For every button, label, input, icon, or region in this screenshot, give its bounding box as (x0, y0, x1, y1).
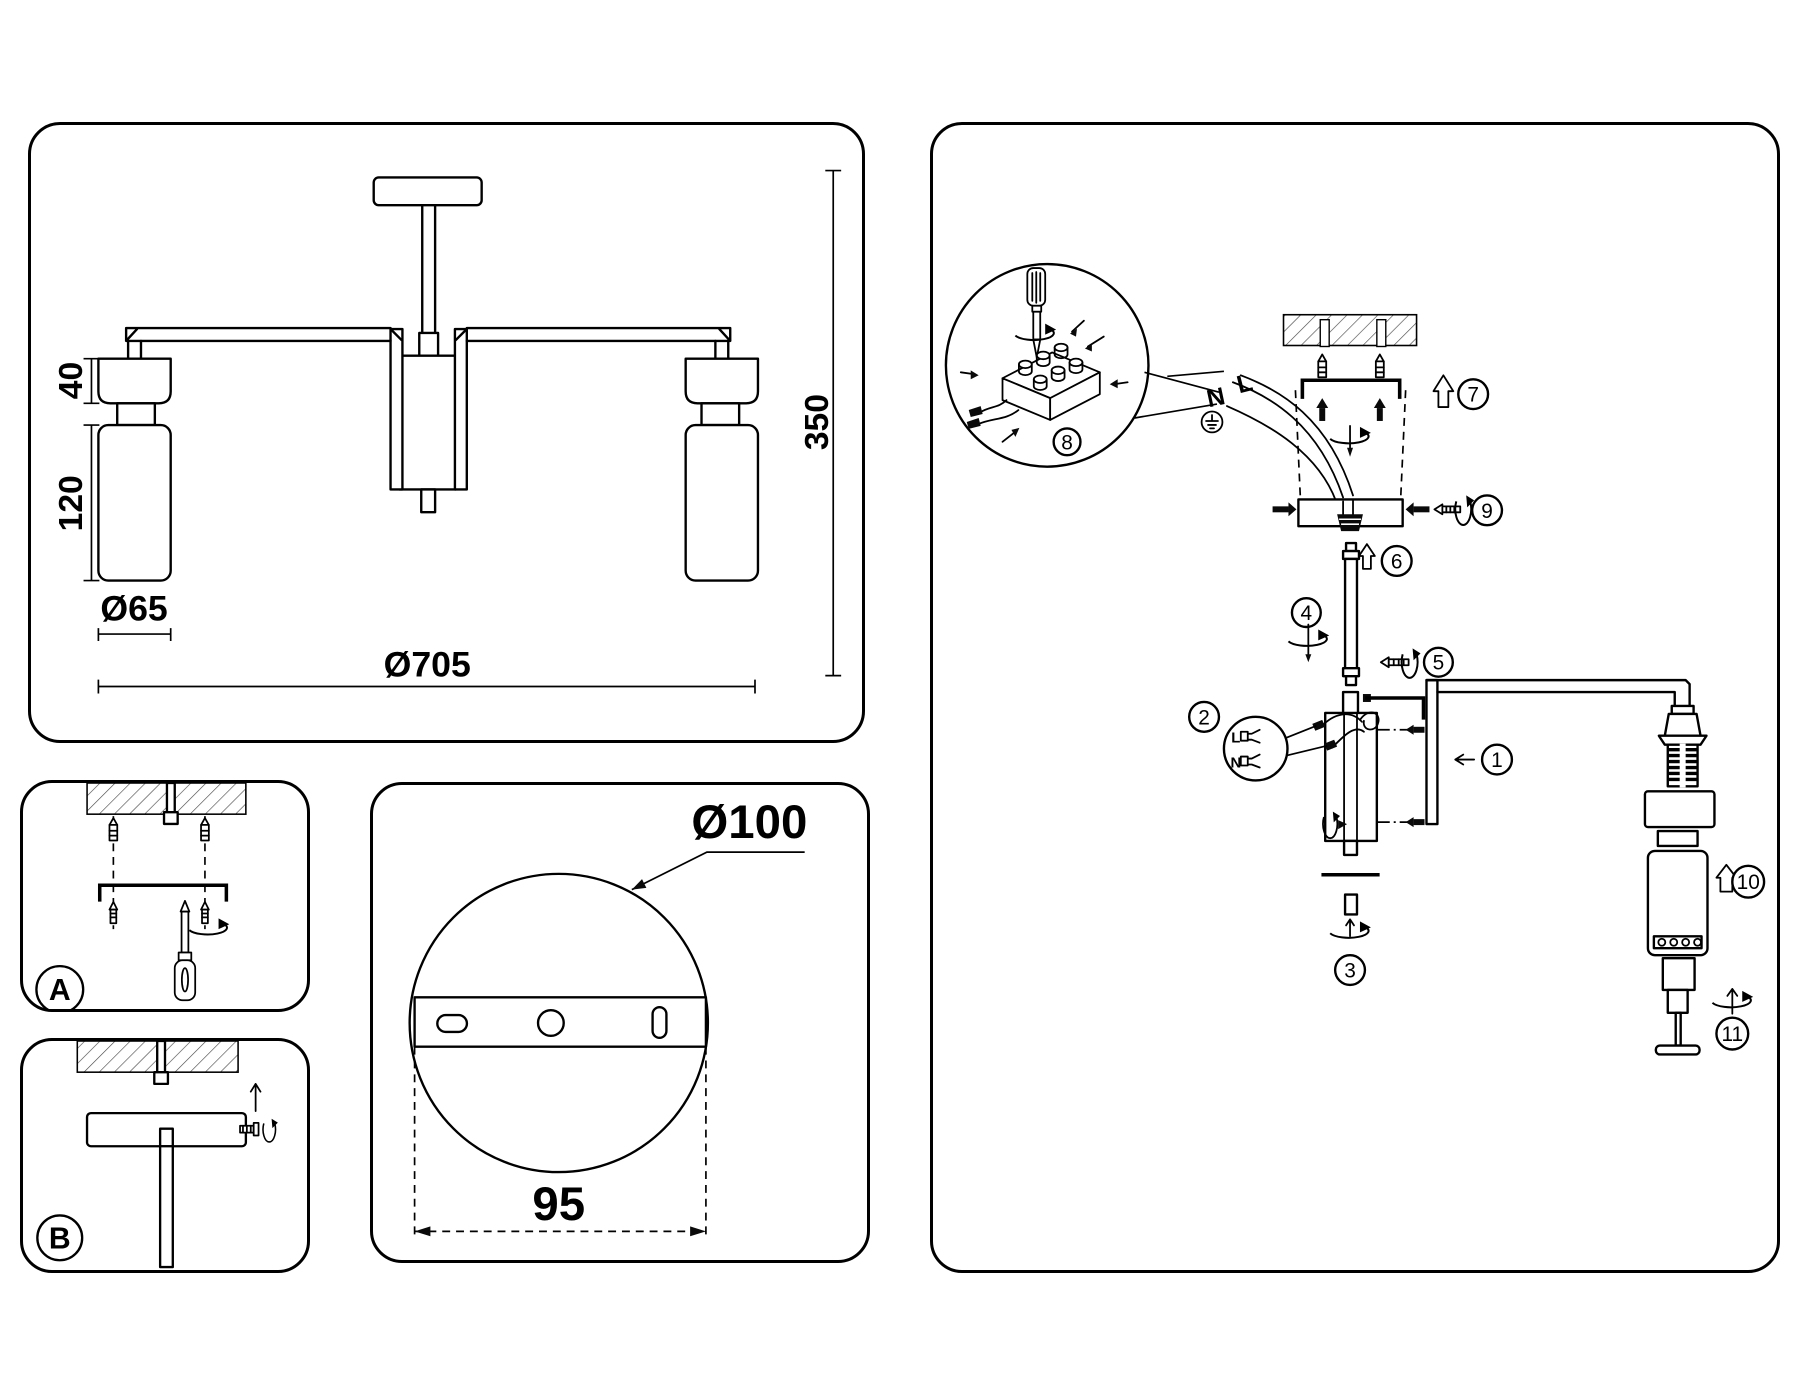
step-b-panel: B (20, 1038, 310, 1273)
left-arm-drop (391, 329, 403, 489)
ceiling-pin-collar (164, 812, 178, 824)
circled-step-6: 6 (1382, 546, 1412, 576)
dimension-panel: 40 120 Ø65 Ø705 350 (28, 122, 865, 743)
dim-label-hole-spacing: 95 (532, 1178, 585, 1231)
step-10-label: 10 (1737, 871, 1760, 894)
finial-part (1345, 895, 1357, 915)
screw-rotation-icon (1330, 426, 1371, 457)
screw-axis-lines (1377, 730, 1424, 822)
circled-step-8: 8 (1054, 428, 1081, 455)
left-arm (126, 328, 401, 341)
step-a-panel: A (20, 780, 310, 1012)
assembly-drawing: 8 L N (933, 125, 1777, 1270)
strain-relief-nut (1337, 514, 1363, 531)
fixture-front-view (98, 177, 758, 580)
right-lamp (686, 359, 758, 581)
dim-label-shade-diameter: Ø65 (100, 588, 167, 628)
step-1-label: 1 (1491, 749, 1503, 772)
slot-vertical (653, 1007, 667, 1038)
dim-label-shade-height: 120 (53, 475, 90, 531)
detail-wire-label-live: L (1231, 731, 1240, 747)
dim-label-head-height: 40 (53, 362, 90, 399)
dim-label-fixture-diameter: Ø705 (384, 645, 471, 685)
center-hole (538, 1010, 564, 1036)
arrow-up-icon (1359, 544, 1375, 569)
dim-label-canopy-diameter: Ø100 (691, 796, 807, 849)
step-badge-b-label: B (49, 1222, 71, 1255)
right-arm (456, 328, 730, 341)
lamp-head-block (1645, 791, 1715, 827)
led-bulb (1656, 958, 1700, 1054)
circled-step-2: 2 (1189, 702, 1219, 732)
canopy-dimension-panel: Ø100 95 (370, 782, 870, 1263)
lamp-socket (1659, 706, 1707, 787)
step-badge-a: A (36, 966, 83, 1009)
step-6-label: 6 (1391, 550, 1403, 573)
arm (1426, 680, 1689, 713)
wall-anchor-icons (109, 818, 208, 840)
rod-collar (419, 333, 438, 357)
down-rod (160, 1146, 173, 1267)
alignment-dashed-lines (113, 816, 205, 929)
step-4-label: 4 (1301, 602, 1313, 625)
down-rod (422, 205, 435, 334)
arrow-left-icon (1455, 755, 1474, 765)
arm-plate (1426, 680, 1437, 824)
step-b-drawing: B (23, 1041, 307, 1270)
ceiling-canopy (374, 177, 482, 205)
circled-step-5: 5 (1424, 648, 1453, 677)
dim-label-fixture-height: 350 (799, 394, 836, 450)
canopy-drawing: Ø100 95 (373, 785, 867, 1260)
step-9-label: 9 (1481, 500, 1493, 523)
rotation-up-icon (1712, 989, 1753, 1014)
step-2-label: 2 (1198, 706, 1210, 729)
circled-step-9: 9 (1472, 495, 1502, 525)
ceiling-pin (157, 1041, 165, 1072)
assembly-panel: 8 L N (930, 122, 1780, 1273)
arrow-up-icon (1433, 375, 1453, 407)
detail-wire-label-neutral: N (1230, 756, 1241, 772)
step-badge-b: B (37, 1215, 82, 1260)
bottom-pin (421, 489, 435, 512)
ceiling-hatch (1284, 315, 1417, 347)
step-5-label: 5 (1433, 652, 1445, 675)
step-badge-a-label: A (49, 974, 71, 1007)
step-7-label: 7 (1467, 384, 1479, 407)
circled-step-1: 1 (1482, 745, 1512, 775)
slot-horizontal (437, 1015, 467, 1032)
detail-leader-lines (1286, 726, 1327, 756)
wire-leader (1167, 371, 1224, 376)
wire-label-neutral: N (1204, 383, 1227, 413)
glass-shade (1648, 851, 1708, 955)
right-arm-drop (455, 329, 467, 489)
central-body (399, 356, 455, 490)
screw-icons (1316, 398, 1386, 421)
ceiling-pin-collar (154, 1072, 168, 1084)
screw-icons (109, 902, 208, 923)
circled-step-10: 10 (1732, 866, 1764, 898)
threaded-tube (1668, 744, 1698, 788)
plate-screws (1406, 725, 1425, 827)
rotation-arrow-icon (189, 918, 229, 934)
rod-stub (160, 1129, 173, 1147)
fixture-dimension-drawing: 40 120 Ø65 Ø705 350 (31, 125, 862, 740)
ceiling-pin (167, 783, 175, 812)
dim-line-65 (98, 628, 170, 641)
circled-step-3: 3 (1335, 955, 1365, 985)
rotation-arrow-icon (263, 1119, 278, 1142)
rotation-up-icon (1330, 919, 1371, 937)
circled-step-4: 4 (1292, 598, 1321, 627)
screwdriver-icon (175, 901, 195, 1000)
screw-rotation-icon (1288, 625, 1329, 663)
mounting-bracket (100, 885, 227, 900)
ground-icon (1202, 412, 1223, 433)
grub-screw-icon (1381, 657, 1409, 667)
step-8-label: 8 (1061, 431, 1073, 454)
wall-anchor-icons (1318, 354, 1384, 377)
left-lamp (98, 359, 170, 581)
arrow-up-icon (251, 1084, 261, 1111)
lamp-neck-ring (1658, 831, 1698, 846)
circled-step-11: 11 (1716, 1018, 1748, 1050)
mounting-bracket (1302, 380, 1399, 397)
step-a-drawing: A (23, 783, 307, 1009)
step-3-label: 3 (1344, 960, 1356, 983)
rod-coupler (1343, 692, 1358, 714)
inner-rod-end (1344, 841, 1357, 855)
threaded-rod (1343, 543, 1359, 685)
circled-step-7: 7 (1458, 379, 1488, 409)
step-11-label: 11 (1721, 1023, 1743, 1046)
leader-line (632, 852, 805, 890)
manual-page: 40 120 Ø65 Ø705 350 A (0, 0, 1800, 1400)
